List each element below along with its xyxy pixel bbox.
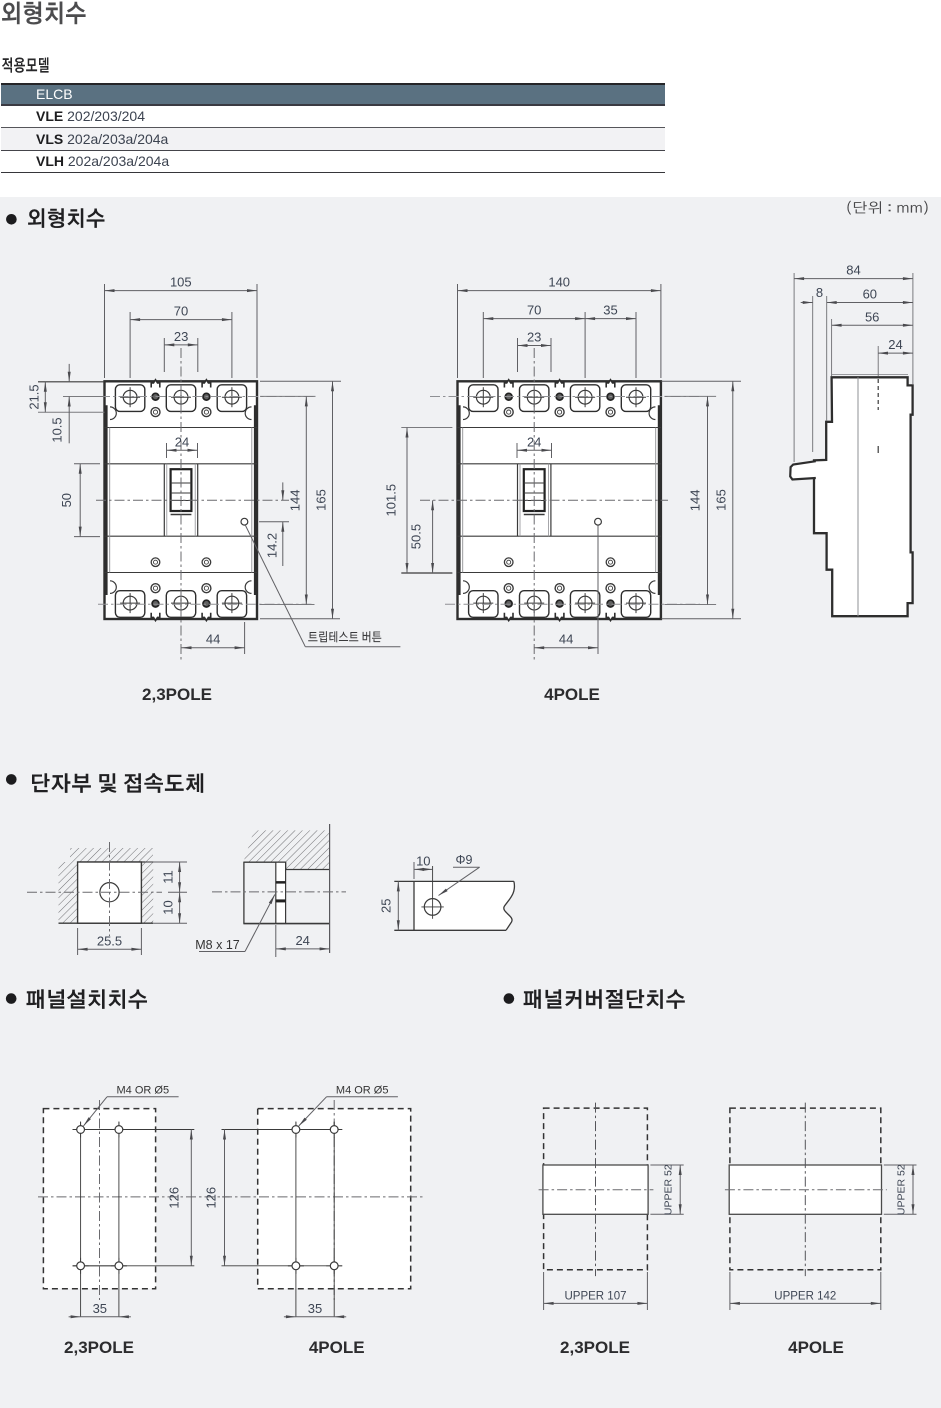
svg-text:140: 140 [548, 275, 570, 290]
svg-text:UPPER 52: UPPER 52 [896, 1164, 908, 1215]
svg-text:23: 23 [527, 330, 541, 345]
svg-text:24: 24 [175, 434, 189, 449]
svg-text:2,3POLE: 2,3POLE [64, 1338, 134, 1357]
svg-text:70: 70 [527, 303, 541, 318]
svg-text:105: 105 [170, 275, 192, 290]
svg-text:44: 44 [206, 632, 220, 647]
svg-text:24: 24 [527, 434, 541, 449]
svg-text:4POLE: 4POLE [788, 1338, 844, 1357]
svg-text:10: 10 [416, 853, 430, 868]
svg-text:165: 165 [314, 489, 329, 511]
svg-text:101.5: 101.5 [384, 484, 399, 517]
svg-text:35: 35 [308, 1301, 322, 1316]
svg-text:165: 165 [714, 489, 729, 511]
svg-text:2,3POLE: 2,3POLE [142, 685, 212, 704]
svg-text:50: 50 [59, 493, 74, 507]
svg-text:60: 60 [863, 287, 877, 302]
svg-text:50.5: 50.5 [409, 524, 424, 549]
svg-text:35: 35 [603, 303, 617, 318]
svg-text:2,3POLE: 2,3POLE [560, 1338, 630, 1357]
svg-text:8: 8 [816, 285, 823, 300]
svg-text:70: 70 [174, 304, 188, 319]
svg-text:UPPER 52: UPPER 52 [663, 1164, 675, 1215]
svg-text:44: 44 [559, 632, 573, 647]
svg-text:144: 144 [688, 490, 703, 512]
svg-text:4POLE: 4POLE [309, 1338, 365, 1357]
svg-text:144: 144 [288, 490, 303, 512]
svg-text:24: 24 [888, 337, 902, 352]
svg-text:23: 23 [174, 329, 188, 344]
svg-text:56: 56 [865, 309, 879, 324]
svg-text:M8 x 17: M8 x 17 [195, 938, 240, 952]
svg-text:10.5: 10.5 [50, 417, 65, 442]
svg-text:84: 84 [846, 263, 860, 278]
svg-text:14.2: 14.2 [264, 533, 279, 558]
svg-text:24: 24 [295, 933, 309, 948]
svg-text:35: 35 [93, 1301, 107, 1316]
svg-text:11: 11 [161, 870, 176, 884]
svg-text:21.5: 21.5 [27, 384, 42, 409]
svg-text:UPPER 142: UPPER 142 [774, 1290, 836, 1302]
svg-text:Φ9: Φ9 [456, 853, 473, 867]
svg-text:10: 10 [161, 900, 176, 914]
svg-text:M4 OR Ø5: M4 OR Ø5 [117, 1084, 170, 1096]
svg-text:126: 126 [167, 1187, 182, 1209]
svg-text:25.5: 25.5 [97, 933, 122, 948]
svg-text:M4 OR Ø5: M4 OR Ø5 [336, 1084, 389, 1096]
svg-text:UPPER 107: UPPER 107 [564, 1290, 626, 1302]
svg-text:25: 25 [378, 899, 393, 913]
svg-text:4POLE: 4POLE [544, 685, 600, 704]
svg-text:126: 126 [204, 1187, 219, 1209]
